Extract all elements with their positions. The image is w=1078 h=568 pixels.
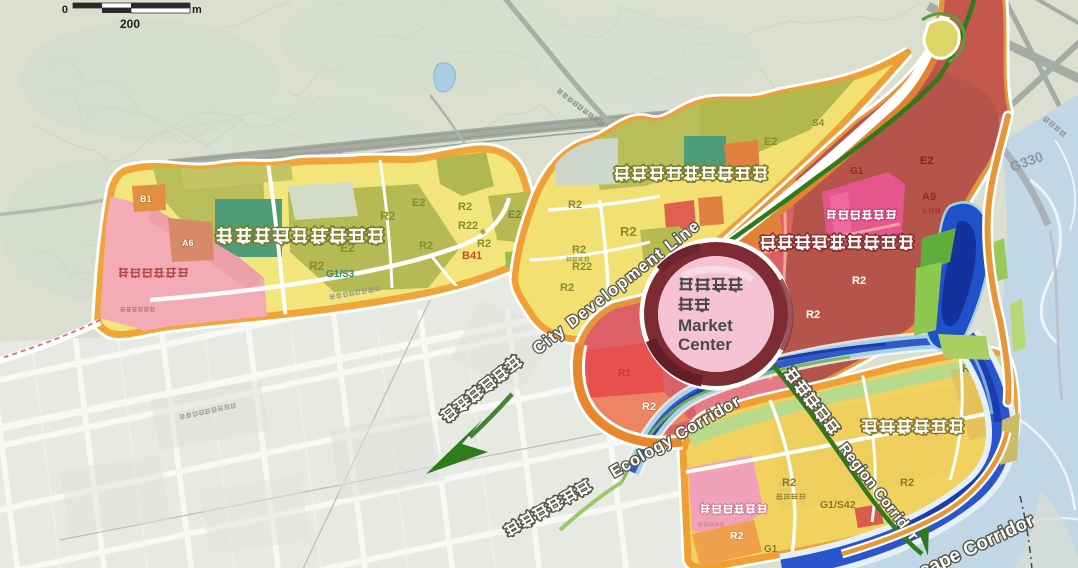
svg-text:R22: R22 [458, 220, 478, 232]
svg-text:R2: R2 [642, 401, 656, 413]
svg-text:E2: E2 [920, 155, 933, 167]
svg-text:G1/S42: G1/S42 [820, 499, 856, 511]
svg-text:R2: R2 [572, 244, 586, 256]
svg-text:G1/S3: G1/S3 [326, 269, 355, 280]
svg-text:R2: R2 [900, 477, 914, 489]
svg-text:E2: E2 [508, 209, 521, 221]
svg-text:R2: R2 [782, 477, 796, 489]
svg-text:S4: S4 [812, 118, 825, 129]
svg-text:R1: R1 [618, 368, 631, 379]
svg-text:A6: A6 [182, 238, 194, 248]
svg-text:R2: R2 [568, 199, 582, 211]
svg-text:Center: Center [678, 335, 732, 354]
svg-text:R2: R2 [477, 238, 491, 250]
svg-text:R2: R2 [852, 275, 866, 287]
svg-text:B41: B41 [462, 250, 482, 262]
svg-text:B1: B1 [140, 194, 152, 204]
svg-text:R2: R2 [806, 309, 820, 321]
svg-text:m: m [192, 4, 202, 16]
svg-text:R2: R2 [419, 240, 433, 252]
svg-text:⊕: ⊕ [480, 229, 486, 236]
svg-text:G1: G1 [850, 166, 864, 177]
svg-text:R2: R2 [380, 209, 396, 223]
svg-text:E2: E2 [764, 136, 777, 148]
svg-text:R2: R2 [620, 224, 637, 239]
svg-text:R2: R2 [730, 530, 744, 542]
svg-text:R22: R22 [572, 261, 592, 273]
svg-text:R2: R2 [560, 282, 574, 294]
svg-text:E2: E2 [412, 197, 425, 209]
svg-text:G1: G1 [764, 544, 778, 555]
svg-text:A9: A9 [922, 191, 936, 203]
svg-text:200: 200 [120, 17, 140, 31]
svg-text:0: 0 [62, 4, 68, 16]
svg-text:R2: R2 [458, 201, 472, 213]
svg-text:R2: R2 [309, 259, 325, 273]
svg-text:Market: Market [678, 316, 733, 335]
